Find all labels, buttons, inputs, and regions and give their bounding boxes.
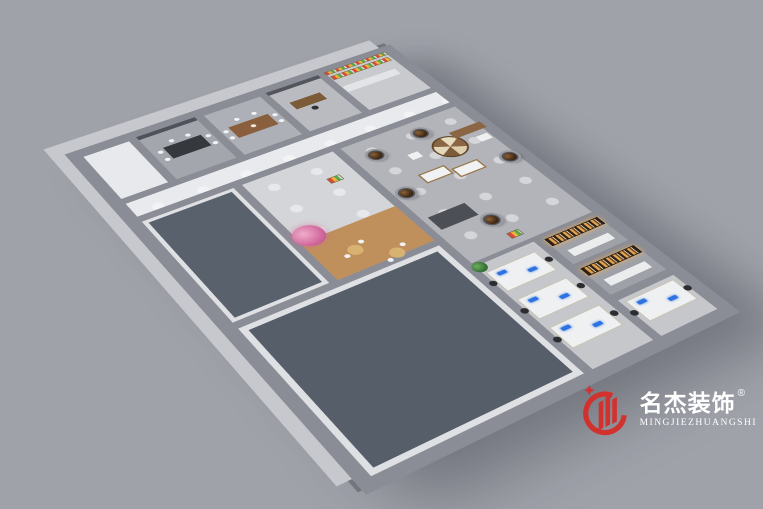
logo-tower-2 [605, 395, 610, 427]
logo-tower-1 [598, 400, 603, 430]
logo-tower-3 [612, 397, 617, 424]
brand-logo-icon [581, 384, 633, 436]
sparkle-star-icon [584, 385, 594, 395]
floorplan-render-scene [0, 0, 763, 444]
brand-logo-text: 名杰装饰 ® MINGJIEZHUANGSHI [640, 392, 757, 428]
registered-trademark-mark: ® [738, 389, 745, 399]
logo-ring [585, 394, 623, 432]
brand-name-cn: 名杰装饰 [640, 392, 736, 415]
brand-name-en: MINGJIEZHUANGSHI [640, 418, 757, 428]
brand-logo: 名杰装饰 ® MINGJIEZHUANGSHI [581, 384, 757, 436]
